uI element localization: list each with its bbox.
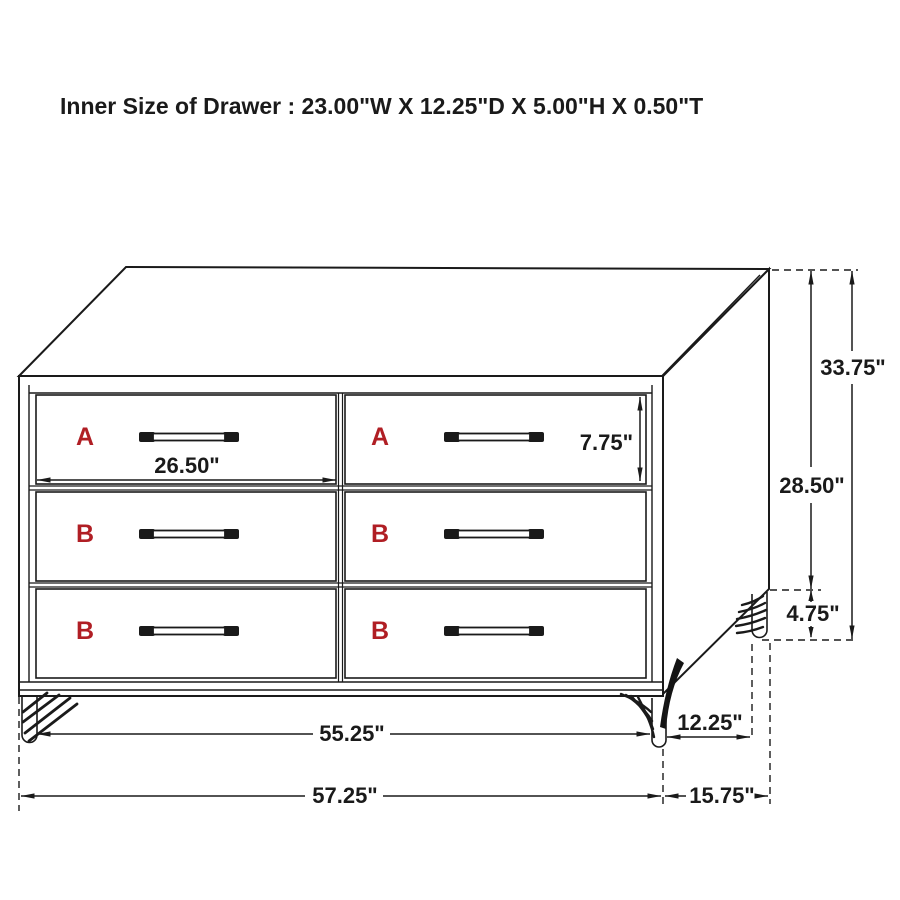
drawer-handle xyxy=(444,626,544,636)
dim-drawer-width-label: 26.50" xyxy=(154,453,219,478)
drawer-label-top-right: A xyxy=(371,423,389,451)
dim-overall-depth: 15.75" xyxy=(665,783,768,808)
dresser-illustration: A A B B B B xyxy=(19,267,769,747)
dim-overall-width-label: 57.25" xyxy=(312,783,377,808)
front-left-leg xyxy=(22,693,77,743)
dim-overall-height-label: 33.75" xyxy=(820,355,885,380)
dim-leg-height: 4.75" xyxy=(786,590,839,638)
dim-drawer-height-label: 7.75" xyxy=(580,430,633,455)
dim-overall-height: 33.75" xyxy=(820,271,885,639)
drawer-label-bottom-right: B xyxy=(371,617,389,645)
dim-body-width-label: 55.25" xyxy=(319,721,384,746)
dim-leg-height-label: 4.75" xyxy=(786,601,839,626)
drawer-handle xyxy=(444,432,544,442)
drawer-label-bottom-left: B xyxy=(76,617,94,645)
drawer-label-top-left: A xyxy=(76,423,94,451)
drawer-handle xyxy=(139,432,239,442)
dim-body-width: 55.25" xyxy=(37,721,650,746)
dim-side-depth-label: 12.25" xyxy=(677,710,742,735)
dresser-dimension-drawing: Inner Size of Drawer : 23.00"W X 12.25"D… xyxy=(0,0,900,900)
drawer-label-middle-left: B xyxy=(76,520,94,548)
dim-side-depth: 12.25" xyxy=(667,710,750,737)
dimension-diagram-page: Inner Size of Drawer : 23.00"W X 12.25"D… xyxy=(0,0,900,900)
top-panel xyxy=(19,267,769,385)
dim-overall-width: 57.25" xyxy=(21,783,661,808)
drawer-handle xyxy=(139,626,239,636)
drawer-label-middle-right: B xyxy=(371,520,389,548)
diagram-title: Inner Size of Drawer : 23.00"W X 12.25"D… xyxy=(60,93,703,119)
dim-body-height-label: 28.50" xyxy=(779,473,844,498)
drawer-handle xyxy=(139,529,239,539)
dim-body-height: 28.50" xyxy=(779,271,844,589)
drawer-handle xyxy=(444,529,544,539)
dim-overall-depth-label: 15.75" xyxy=(689,783,754,808)
